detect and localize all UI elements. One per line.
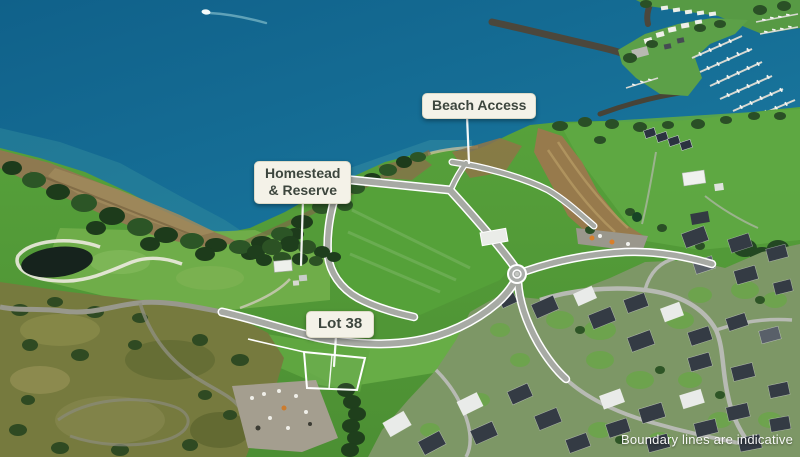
homestead-reserve-label: Homestead & Reserve xyxy=(254,161,351,204)
aerial-site-view: Beach Access Homestead & Reserve Lot 38 … xyxy=(0,0,800,457)
aerial-photo-scene xyxy=(0,0,800,457)
homestead-reserve-label-line2: & Reserve xyxy=(265,182,340,199)
homestead-reserve-label-line1: Homestead xyxy=(265,165,340,182)
homestead-house xyxy=(274,260,293,273)
lot-38-label: Lot 38 xyxy=(306,311,374,338)
boundary-disclaimer: Boundary lines are indicative xyxy=(621,432,793,447)
beach-access-label: Beach Access xyxy=(422,93,536,119)
roundabout xyxy=(507,264,527,284)
water-tank xyxy=(632,212,642,222)
